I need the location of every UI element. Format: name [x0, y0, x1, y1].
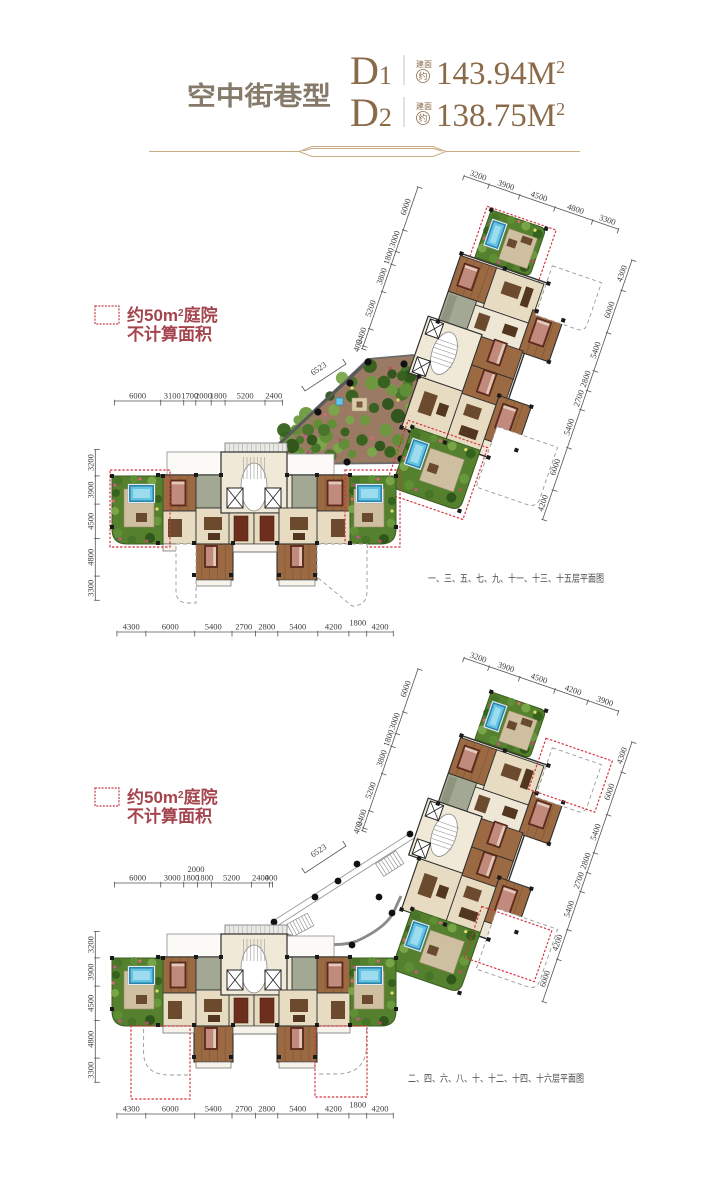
svg-text:1800: 1800	[196, 873, 213, 883]
svg-text:4200: 4200	[325, 622, 342, 632]
svg-text:400: 400	[265, 873, 278, 883]
svg-text:4300: 4300	[123, 622, 140, 632]
svg-text:3900: 3900	[85, 482, 95, 499]
svg-text:4800: 4800	[85, 549, 95, 566]
svg-text:3300: 3300	[85, 1062, 95, 1079]
svg-text:2700: 2700	[235, 622, 252, 632]
svg-text:约: 约	[418, 113, 427, 124]
svg-text:6000: 6000	[162, 622, 179, 632]
svg-text:3000: 3000	[164, 873, 181, 883]
svg-text:6000: 6000	[162, 1104, 179, 1114]
svg-text:一、三、五、七、九、十一、十三、十五层平面图: 一、三、五、七、九、十一、十三、十五层平面图	[428, 572, 604, 585]
svg-text:不计算面积: 不计算面积	[127, 324, 212, 344]
svg-text:约50m2庭院: 约50m2庭院	[127, 787, 218, 807]
svg-text:二、四、六、八、十、十二、十四、十六层平面图: 二、四、六、八、十、十二、十四、十六层平面图	[408, 1072, 584, 1085]
svg-text:3900: 3900	[85, 964, 95, 981]
svg-text:6000: 6000	[129, 873, 146, 883]
svg-text:4500: 4500	[85, 513, 95, 530]
svg-text:5400: 5400	[289, 622, 306, 632]
svg-text:1800: 1800	[349, 618, 366, 628]
svg-text:建面: 建面	[416, 59, 432, 69]
svg-text:1800: 1800	[210, 391, 227, 401]
svg-text:3200: 3200	[85, 936, 95, 953]
svg-text:5400: 5400	[205, 1104, 222, 1114]
svg-text:3300: 3300	[85, 580, 95, 597]
svg-text:6000: 6000	[129, 391, 146, 401]
svg-text:不计算面积: 不计算面积	[127, 806, 212, 826]
svg-text:约: 约	[418, 71, 427, 82]
svg-text:4200: 4200	[372, 622, 389, 632]
svg-text:1800: 1800	[349, 1100, 366, 1110]
svg-text:2800: 2800	[258, 622, 275, 632]
svg-text:143.94M2: 143.94M2	[436, 56, 565, 92]
svg-text:5400: 5400	[289, 1104, 306, 1114]
svg-text:5200: 5200	[223, 873, 240, 883]
svg-text:空中街巷型: 空中街巷型	[187, 81, 331, 111]
svg-text:4200: 4200	[325, 1104, 342, 1114]
svg-text:5200: 5200	[237, 391, 254, 401]
svg-text:3100: 3100	[164, 391, 181, 401]
svg-text:2700: 2700	[235, 1104, 252, 1114]
svg-text:4500: 4500	[85, 995, 95, 1012]
svg-text:建面: 建面	[416, 101, 432, 111]
svg-text:4800: 4800	[85, 1031, 95, 1048]
svg-text:约50m2庭院: 约50m2庭院	[127, 305, 218, 325]
svg-text:2800: 2800	[258, 1104, 275, 1114]
svg-text:4300: 4300	[123, 1104, 140, 1114]
svg-text:2400: 2400	[265, 391, 282, 401]
svg-text:5400: 5400	[205, 622, 222, 632]
svg-text:138.75M2: 138.75M2	[436, 98, 565, 134]
svg-text:3200: 3200	[85, 454, 95, 471]
svg-text:4200: 4200	[372, 1104, 389, 1114]
svg-text:2000: 2000	[188, 864, 205, 874]
